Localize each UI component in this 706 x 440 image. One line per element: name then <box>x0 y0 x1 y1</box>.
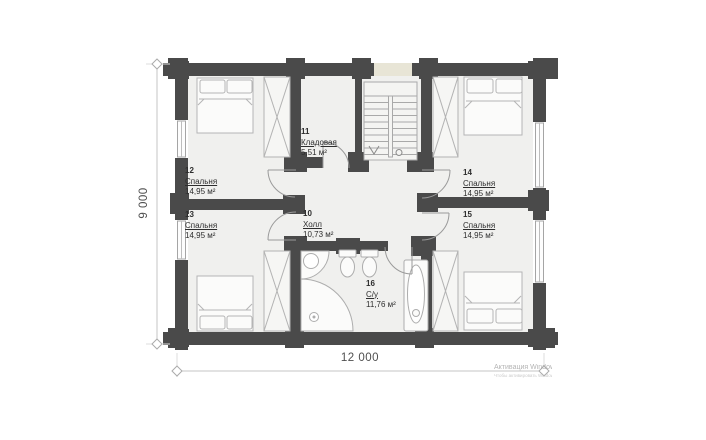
bed-room-14 <box>464 77 522 135</box>
room-label-bedroom-12: 12 Спальня 14,95 м² <box>185 166 217 198</box>
stair-divider <box>389 96 393 157</box>
bidet <box>361 250 378 277</box>
wardrobe-room-13 <box>264 251 290 331</box>
floor-plan-page: 10 Холл 10,73 м² 11 Кладовая 5,51 м² 12 … <box>0 0 706 440</box>
bathtub <box>404 260 428 331</box>
wardrobe-room-12 <box>264 77 290 157</box>
wall-bottom <box>163 332 558 345</box>
staircase <box>364 82 417 160</box>
room-label-hall: 10 Холл 10,73 м² <box>303 209 333 241</box>
dimension-width-label: 12 000 <box>300 352 420 364</box>
stair-newel-post <box>396 150 402 156</box>
toilet <box>339 250 356 277</box>
dimension-height-label: 9 000 <box>138 173 150 233</box>
wardrobe-room-14 <box>433 77 458 157</box>
bed-room-12 <box>197 78 253 133</box>
room-label-bedroom-13: 13 Спальня 14,95 м² <box>185 210 217 242</box>
room-label-bathroom: 16 С/у 11,76 м² <box>366 279 396 311</box>
window-right-2 <box>533 220 546 283</box>
floor-plan-drawing <box>0 0 706 440</box>
room-label-bedroom-14: 14 Спальня 14,95 м² <box>463 168 495 200</box>
window-left-1 <box>175 120 188 158</box>
bed-room-15 <box>464 272 522 330</box>
room-label-storeroom: 11 Кладовая 5,51 м² <box>301 127 337 159</box>
window-right-1 <box>533 122 546 188</box>
bed-room-13 <box>197 276 253 331</box>
window-top <box>374 63 412 76</box>
wardrobe-room-15 <box>433 251 458 331</box>
room-label-bedroom-15: 15 Спальня 14,95 м² <box>463 210 495 242</box>
